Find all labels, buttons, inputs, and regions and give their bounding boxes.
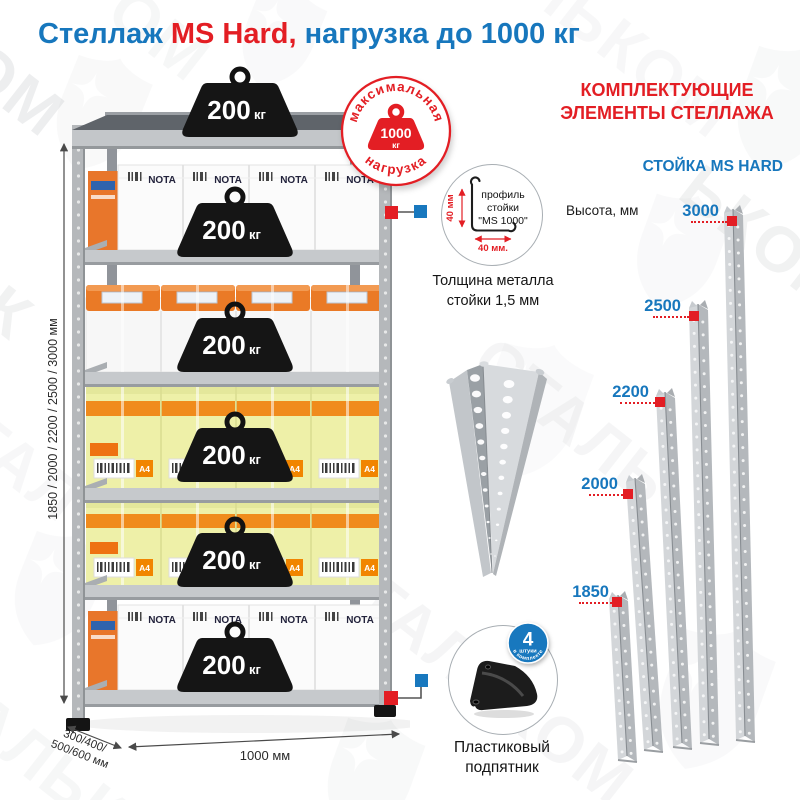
included-count: 4	[523, 630, 534, 651]
weight-unit: кг	[249, 662, 262, 677]
post-height-label-1850: 1850	[566, 583, 609, 602]
included-count-badge: 4 штуки в комплекте	[506, 621, 550, 665]
post-height-marker-2000	[623, 489, 633, 499]
post-height-leader-2200	[620, 402, 655, 404]
box-brand-label: NOTA	[214, 175, 242, 186]
weight-unit: кг	[254, 107, 267, 122]
box-size-label: A4	[289, 563, 300, 573]
profile-text-2: стойки	[487, 202, 519, 214]
kettlebell-handle-icon	[390, 106, 402, 118]
foot-callout-marker-blue	[415, 674, 428, 687]
note-line2: стойки 1,5 мм	[421, 292, 565, 312]
width-dimension-text: 1000 мм	[225, 748, 305, 763]
post-height-marker-2500	[689, 311, 699, 321]
components-header: КОМПЛЕКТУЮЩИЕ ЭЛЕМЕНТЫ СТЕЛЛАЖА	[541, 79, 793, 126]
weight-value: 200	[202, 650, 245, 680]
post-height-leader-3000	[691, 221, 727, 223]
badge-value: 1000	[380, 125, 411, 141]
included-count-caption: штуки	[519, 649, 537, 655]
foot-label-line2: подпятник	[432, 758, 572, 778]
max-load-badge: максимальная нагрузка 1000 кг	[334, 70, 458, 194]
post-height-label-2500: 2500	[639, 297, 681, 316]
post-height-label-3000: 3000	[677, 202, 719, 221]
weight-badge-200kg: 200 кг	[182, 69, 298, 137]
weight-value: 200	[202, 440, 245, 470]
box-size-label: A4	[139, 464, 150, 474]
box-size-label: A4	[364, 563, 375, 573]
post-height-leader-2000	[589, 494, 623, 496]
weight-value: 200	[207, 95, 250, 125]
profile-dim-vertical: 40 мм	[445, 194, 456, 221]
height-caption: Высота, мм	[566, 203, 638, 218]
post-height-marker-2200	[655, 397, 665, 407]
components-header-line1: КОМПЛЕКТУЮЩИЕ	[541, 79, 793, 102]
infographic-page: КОМ ОМ ЛЬКОМ ЬКОМ ЛЬК СТАЛ СТАЛЬ СТАЛЬКО…	[0, 0, 800, 800]
post-height-label-2000: 2000	[576, 475, 618, 494]
box-brand-label: NOTA	[280, 175, 308, 186]
box-brand-label: NOTA	[280, 615, 308, 626]
page-title: Стеллаж MS Hard, нагрузка до 1000 кг	[38, 18, 580, 51]
profile-text-3: "MS 1000"	[478, 215, 528, 227]
profile-callout-marker-blue	[414, 205, 427, 218]
weight-unit: кг	[249, 227, 262, 242]
post-height-label-2200: 2200	[607, 383, 649, 402]
post-height-marker-3000	[727, 216, 737, 226]
profile-text-1: профиль	[481, 189, 525, 201]
components-header-line2: ЭЛЕМЕНТЫ СТЕЛЛАЖА	[541, 102, 793, 125]
weight-unit: кг	[249, 342, 262, 357]
box-brand-label: NOTA	[148, 175, 176, 186]
foot-label-line1: Пластиковый	[432, 738, 572, 758]
box-brand-label: NOTA	[346, 615, 374, 626]
weight-value: 200	[202, 330, 245, 360]
post-perspective-illustration	[435, 352, 565, 587]
box-brand-label: NOTA	[148, 615, 176, 626]
box-size-label: A4	[364, 464, 375, 474]
profile-dim-horizontal: 40 мм.	[478, 243, 508, 254]
weight-value: 200	[202, 545, 245, 575]
box-size-label: A4	[139, 563, 150, 573]
profile-callout-marker-red	[385, 206, 398, 219]
title-part-blue2: нагрузка до 1000 кг	[297, 18, 580, 50]
weight-value: 200	[202, 215, 245, 245]
watermark-text: ЛЬК	[0, 212, 47, 354]
weight-unit: кг	[249, 452, 262, 467]
weight-unit: кг	[249, 557, 262, 572]
title-part-red: MS Hard,	[171, 18, 297, 50]
height-dimension-text: 1850 / 2000 / 2200 / 2500 / 3000 мм	[46, 274, 60, 564]
post-height-leader-2500	[653, 316, 689, 318]
plastic-foot-label: Пластиковый подпятник	[432, 738, 572, 778]
badge-unit: кг	[392, 140, 400, 150]
post-height-marker-1850	[612, 597, 622, 607]
metal-thickness-note: Толщина металла стойки 1,5 мм	[421, 272, 565, 311]
post-height-leader-1850	[579, 602, 612, 604]
title-part-blue: Стеллаж	[38, 18, 171, 50]
foot-callout-marker-red	[384, 691, 398, 705]
note-line1: Толщина металла	[421, 272, 565, 292]
post-section-title: СТОЙКА MS HARD	[600, 158, 783, 176]
